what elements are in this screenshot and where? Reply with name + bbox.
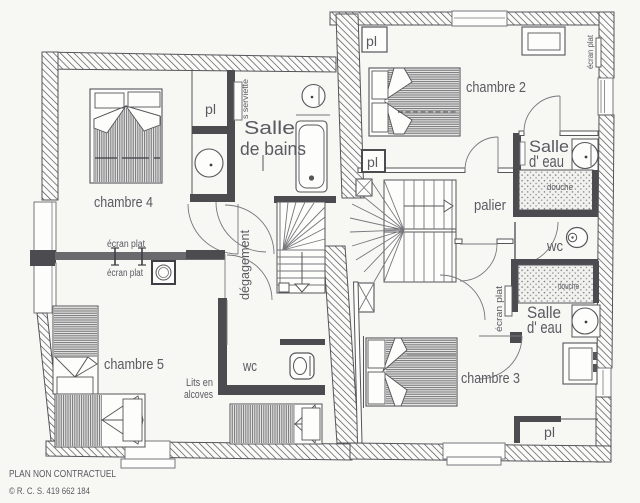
svg-text:chambre 4: chambre 4: [94, 194, 153, 211]
svg-text:douche: douche: [547, 182, 573, 193]
svg-text:s serviette: s serviette: [241, 78, 250, 119]
svg-text:de bains: de bains: [240, 139, 306, 159]
svg-text:écran plat: écran plat: [107, 239, 145, 250]
svg-text:d' eau: d' eau: [527, 319, 562, 337]
svg-text:chambre 3: chambre 3: [461, 370, 520, 387]
svg-text:pl: pl: [205, 101, 216, 117]
svg-text:Lits en: Lits en: [186, 377, 213, 389]
svg-text:dégagement: dégagement: [237, 230, 252, 300]
svg-text:écran plat: écran plat: [494, 285, 504, 332]
svg-text:wc: wc: [546, 238, 563, 255]
svg-text:© R. C. S. 419 662 184: © R. C. S. 419 662 184: [9, 486, 90, 497]
svg-text:Salle: Salle: [244, 118, 295, 138]
svg-text:pl: pl: [544, 424, 555, 440]
svg-text:douche: douche: [558, 281, 579, 292]
svg-text:palier: palier: [474, 197, 506, 214]
svg-text:alcoves: alcoves: [184, 389, 213, 401]
svg-text:pl: pl: [366, 33, 377, 49]
svg-text:écran plat: écran plat: [107, 268, 143, 279]
svg-text:PLAN NON CONTRACTUEL: PLAN NON CONTRACTUEL: [9, 469, 116, 480]
svg-text:écran plat: écran plat: [585, 34, 595, 69]
svg-text:pl: pl: [367, 154, 378, 170]
svg-text:d' eau: d' eau: [529, 153, 564, 171]
svg-text:chambre 2: chambre 2: [466, 79, 526, 96]
svg-text:chambre 5: chambre 5: [104, 356, 164, 373]
svg-text:wc: wc: [242, 358, 257, 375]
